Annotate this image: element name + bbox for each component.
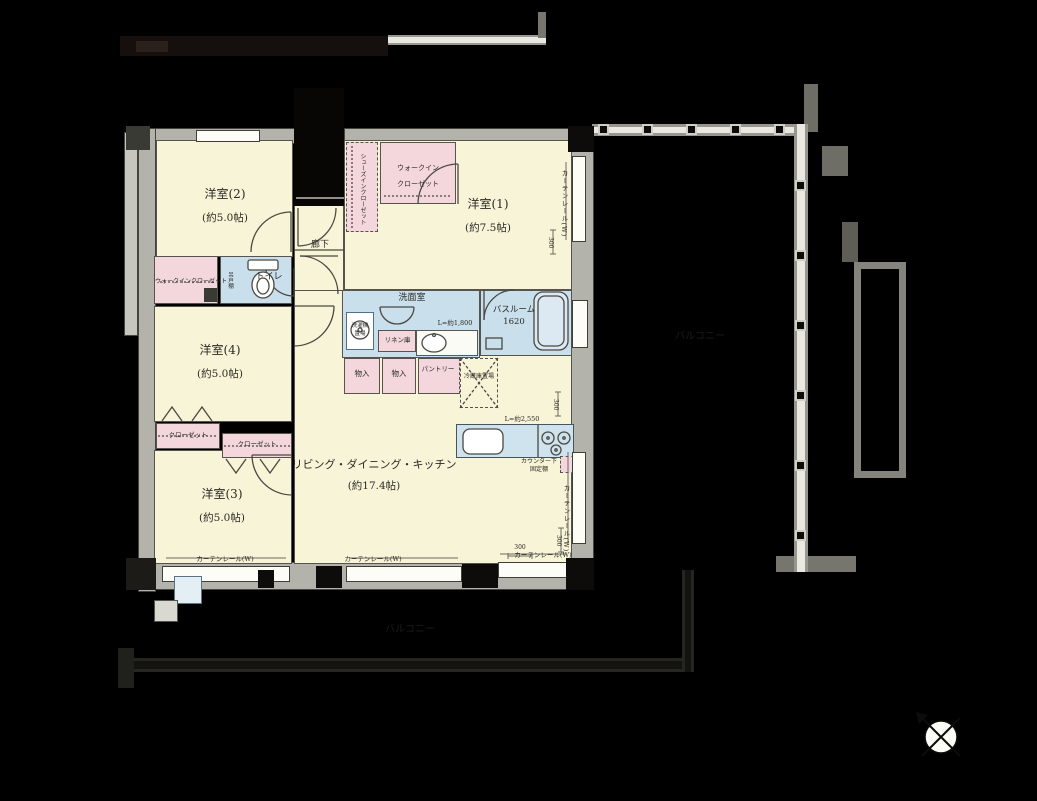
rail-post — [795, 320, 806, 331]
fridge-label: 冷蔵庫置場 — [458, 374, 500, 381]
bedroom2-name: 洋室(2) — [160, 188, 290, 202]
ldk-name: リビング・ダイニング・キッチン — [284, 459, 464, 472]
counter-shelf-label-2: 固定棚 — [518, 467, 560, 474]
balcony-rail-bottom — [132, 658, 688, 672]
washroom-name: 洗面室 — [384, 293, 440, 303]
rail-post — [730, 124, 741, 135]
upper-balcony-post — [538, 12, 546, 38]
upper-balcony-rail — [388, 35, 546, 45]
counter-shelf-label-1: カウンター下 — [518, 459, 560, 466]
window-bedroom2-top — [196, 130, 260, 142]
neighbor-partition — [854, 262, 906, 478]
linen-label: リネン庫 — [379, 337, 416, 344]
balcony-bottom-label: バルコニー — [372, 624, 448, 636]
rail-post — [598, 124, 609, 135]
room-bedroom4 — [154, 306, 292, 422]
hanging-cabinet-label: 吊戸棚 — [224, 263, 233, 297]
storage-a-label: 物入 — [346, 370, 378, 379]
bedroom3-name: 洋室(3) — [157, 488, 287, 502]
pillar-bottom-small — [258, 570, 274, 588]
toilet-name: トイレ — [246, 272, 292, 282]
bedroom4-size: (約5.0帖) — [155, 368, 285, 380]
curtain-rail-right-bottom: カーテンレール(W) — [559, 482, 569, 556]
shoes-in-closet-label: シューズインクローゼット — [353, 146, 365, 232]
balcony-corner-slab — [776, 556, 856, 572]
balcony-right-label: バルコニー — [662, 331, 738, 343]
balcony-rail-right — [794, 124, 808, 572]
counter-length-label: L=約2,550 — [497, 416, 547, 423]
rail-post — [686, 124, 697, 135]
vanity-counter — [416, 330, 478, 356]
walk-in-closet-main — [380, 142, 456, 204]
balcony-edge-mark — [118, 648, 134, 688]
neighbor-wall-mark — [136, 41, 168, 52]
window-bathroom-right — [572, 300, 588, 348]
bathroom-size: 1620 — [484, 318, 544, 328]
wic-main-label-2: クローゼット — [382, 180, 454, 188]
room-bedroom3 — [154, 450, 292, 564]
washer-label-2: 置場 — [347, 331, 373, 337]
pillar-bottom-mid — [462, 564, 498, 588]
rail-post — [642, 124, 653, 135]
rail-post — [795, 390, 806, 401]
service-box-blue — [174, 576, 202, 604]
pantry-label: パントリー — [416, 366, 460, 373]
closet-a-label: クローゼット — [158, 432, 218, 439]
compass-icon — [916, 712, 960, 756]
bathroom-name: バスルーム — [484, 306, 544, 316]
rail-post — [795, 530, 806, 541]
balcony-rail-bottom-return — [682, 570, 694, 672]
building-step-3 — [842, 222, 858, 262]
rail-post — [795, 460, 806, 471]
bedroom2-size: (約5.0帖) — [160, 212, 290, 224]
pillar-bottom-right — [566, 558, 594, 590]
dim-300-right-top: 300 — [544, 230, 553, 256]
pillar-bottom-left — [126, 558, 156, 590]
storage-b-label: 物入 — [383, 370, 415, 379]
curtain-rail-right-top: カーテンレール(W) — [557, 167, 567, 241]
bedroom4-name: 洋室(4) — [155, 344, 285, 358]
wic4-shelf-box — [204, 288, 217, 302]
bedroom1-name: 洋室(1) — [423, 198, 553, 212]
kitchen-counter — [456, 424, 574, 458]
hallway-name: 廊下 — [297, 240, 343, 250]
pillar-top-left — [126, 126, 150, 150]
bedroom1-size: (約7.5帖) — [423, 222, 553, 234]
rail-post — [795, 250, 806, 261]
floor-plan: 洋室(2) (約5.0帖) 洋室(1) (約7.5帖) 洋室(4) (約5.0帖… — [0, 0, 1037, 801]
building-step-2 — [822, 146, 848, 176]
bedroom3-size: (約5.0帖) — [157, 512, 287, 524]
window-ldk-bottom — [346, 566, 462, 582]
service-box-gray — [154, 600, 178, 622]
room-bedroom1 — [344, 140, 572, 290]
washer-label-1: 洗濯機 — [347, 323, 373, 329]
rail-post — [774, 124, 785, 135]
curtain-rail-bottom-left: カーテンレール(W) — [190, 556, 260, 563]
window-bedroom1-right — [572, 156, 586, 242]
fridge-space — [460, 358, 498, 408]
ldk-size: (約17.4帖) — [284, 480, 464, 492]
wic4-label: ウォークインクローゼット — [155, 279, 219, 286]
pillar-bottom-left-mid — [316, 566, 342, 588]
wall-outer-strip — [124, 132, 138, 336]
window-ldk-right — [572, 452, 586, 544]
wic-main-label-1: ウォークイン — [382, 164, 454, 172]
closet-b-label: クローゼット — [224, 441, 290, 448]
dim-300-right-mid: 300 — [549, 392, 558, 418]
vanity-length-label: L=約1,800 — [430, 320, 480, 327]
window-ldk-bottom-right — [498, 562, 570, 578]
pantry-box — [418, 358, 460, 394]
pillar-top-right — [568, 126, 594, 152]
curtain-rail-bottom-mid: カーテンレール(W) — [338, 556, 408, 563]
rail-post — [795, 180, 806, 191]
entrance-porch — [294, 88, 344, 206]
